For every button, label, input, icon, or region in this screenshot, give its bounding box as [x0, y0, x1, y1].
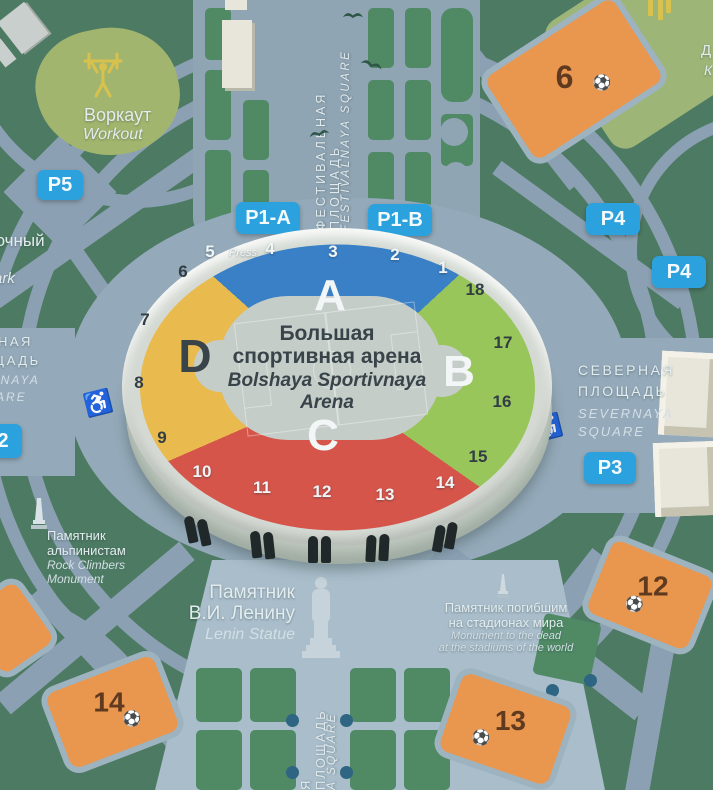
festivalnaya-square-label-en: FESTIVALNAYA SQUARE: [340, 18, 356, 232]
gate-18: 18: [466, 280, 485, 300]
stadium-entrance-marker: [321, 536, 331, 563]
gate-12: 12: [313, 482, 332, 502]
severnaya-label-ru2: ПЛОЩАДЬ: [578, 383, 667, 399]
section-label-a: A: [314, 271, 346, 321]
south-square-label-en: A SQUARE: [324, 700, 340, 790]
building: [225, 0, 247, 10]
press-label: Press: [229, 247, 257, 259]
building: [653, 441, 713, 517]
gate-2: 2: [390, 245, 399, 265]
west-square-label-en2: ARE: [0, 390, 27, 404]
festivalnaya-label-ru-text: ФЕСТИВАЛЬНАЯ ПЛОЩАДЬ: [314, 6, 342, 230]
gate-7: 7: [140, 310, 149, 330]
garden-block: [405, 80, 431, 140]
severnaya-label-en1: SEVERNAYA: [578, 406, 674, 421]
garden-block: [405, 8, 431, 68]
soccer-ball-icon: ⚽: [123, 711, 142, 726]
fountain-dot: [584, 674, 597, 687]
gate-4: 4: [265, 239, 274, 259]
stadium-dead-monument-icon: [496, 574, 510, 600]
gate-13: 13: [376, 485, 395, 505]
fountain-dot: [340, 766, 353, 779]
parking-badge-p2-partial: 2: [0, 424, 22, 458]
west-square-label-ru2: ЩАДЬ: [0, 353, 41, 368]
gate-9: 9: [157, 428, 166, 448]
fountain-dot: [546, 684, 559, 697]
cut-off-icon: [648, 0, 674, 18]
stadium-dead-label-en2: at the stadiums of the world: [439, 642, 574, 654]
stadium-entrance-marker: [378, 534, 389, 561]
section-label-b: B: [443, 347, 475, 397]
field-number: 13: [495, 705, 526, 737]
section-label-c: C: [307, 411, 339, 461]
garden-parterre: [350, 668, 396, 722]
severnaya-label-en2: SQUARE: [578, 424, 645, 439]
gate-11: 11: [253, 478, 271, 498]
soccer-ball-icon: ⚽: [472, 731, 491, 746]
cut-off-label-line1: Д: [701, 42, 711, 59]
soccer-ball-icon: ⚽: [625, 597, 644, 612]
garden-parterre: [250, 730, 296, 790]
cut-off-label-line2: К: [704, 62, 712, 78]
garden-block: [243, 100, 269, 160]
west-square-label-en1: HNAYA: [0, 373, 40, 387]
fountain-dot: [340, 714, 353, 727]
gate-16: 16: [493, 392, 512, 412]
stadium-area-map: Д К Воркаут Workout: [0, 0, 713, 790]
gate-10: 10: [193, 462, 212, 482]
parking-badge-p4-upper: P4: [586, 203, 640, 235]
bird-icon: [342, 8, 364, 21]
fountain-circle: [444, 162, 468, 186]
parking-badge-p1a: P1-A: [236, 202, 300, 234]
gate-3: 3: [328, 242, 337, 262]
parking-badge-p5: P5: [37, 170, 83, 200]
arena-title-en1: Bolshaya Sportivnaya: [228, 369, 427, 392]
gate-17: 17: [494, 333, 513, 353]
festivalnaya-square-label-ru: ФЕСТИВАЛЬНАЯ ПЛОЩАДЬ: [314, 6, 332, 230]
festivalnaya-label-en-text: FESTIVALNAYA SQUARE: [340, 18, 352, 232]
workout-label-en: Workout: [83, 126, 143, 144]
stadium-dead-label-ru1: Памятник погибшим: [445, 600, 568, 615]
field-number: 6: [556, 59, 574, 96]
garden-parterre: [404, 668, 450, 722]
garden-block: [441, 8, 473, 102]
south-square-label-en-text: A SQUARE: [324, 700, 338, 790]
lenin-label-ru1: Памятник: [150, 582, 295, 604]
parking-badge-p4-lower: P4: [652, 256, 706, 288]
workout-label-ru: Воркаут: [84, 105, 151, 126]
lenin-label-ru2: В.И. Ленину: [150, 603, 295, 625]
rock-climbers-label-en2: Monument: [47, 572, 104, 586]
soccer-ball-icon: ⚽: [593, 75, 612, 90]
fountain-circle: [440, 118, 468, 146]
severnaya-label-ru1: СЕВЕРНАЯ: [578, 362, 675, 378]
stadium-dead-monument-label: Памятник погибшим на стадионах мира Monu…: [420, 600, 592, 654]
arena-title-ru2: спортивная арена: [233, 345, 422, 369]
west-square-label-ru1: НАЯ: [0, 334, 33, 349]
stadium-dead-label-en1: Monument to the dead: [451, 630, 561, 642]
left-edge-label-ru: зочный: [0, 231, 45, 251]
rock-climbers-label-ru2: альпинистам: [47, 543, 126, 558]
rock-climbers-monument-icon: [28, 498, 50, 532]
stadium-entrance-marker: [308, 536, 318, 563]
gate-8: 8: [134, 373, 143, 393]
gate-14: 14: [436, 473, 455, 493]
workout-icon: [80, 50, 126, 100]
lenin-label-en: Lenin Statue: [150, 626, 295, 644]
arena-title-en2: Arena: [300, 392, 354, 413]
building: [222, 20, 252, 88]
garden-parterre: [196, 668, 242, 722]
gate-6: 6: [178, 262, 187, 282]
gate-15: 15: [469, 447, 488, 467]
gate-5: 5: [205, 242, 214, 262]
garden-parterre: [350, 730, 396, 790]
stadium-dead-label-ru2: на стадионах мира: [449, 615, 564, 630]
south-square-label-ru: Я ПЛОЩАДЬ: [298, 694, 314, 790]
stadium-entrance-marker: [365, 535, 376, 562]
arena-title-ru1: Большая: [279, 322, 374, 345]
parking-badge-p3: P3: [584, 452, 636, 484]
gate-1: 1: [438, 258, 447, 278]
rock-climbers-label-ru1: Памятник: [47, 528, 106, 543]
lenin-statue-icon: [298, 574, 344, 660]
garden-parterre: [196, 730, 242, 790]
section-label-d: D: [178, 329, 211, 383]
garden-block: [368, 80, 394, 140]
arena-title: Большая спортивная арена Bolshaya Sporti…: [227, 322, 427, 413]
rock-climbers-label-en1: Rock Climbers: [47, 558, 125, 572]
field-number: 14: [93, 687, 124, 719]
left-edge-label-en: ark: [0, 270, 15, 287]
